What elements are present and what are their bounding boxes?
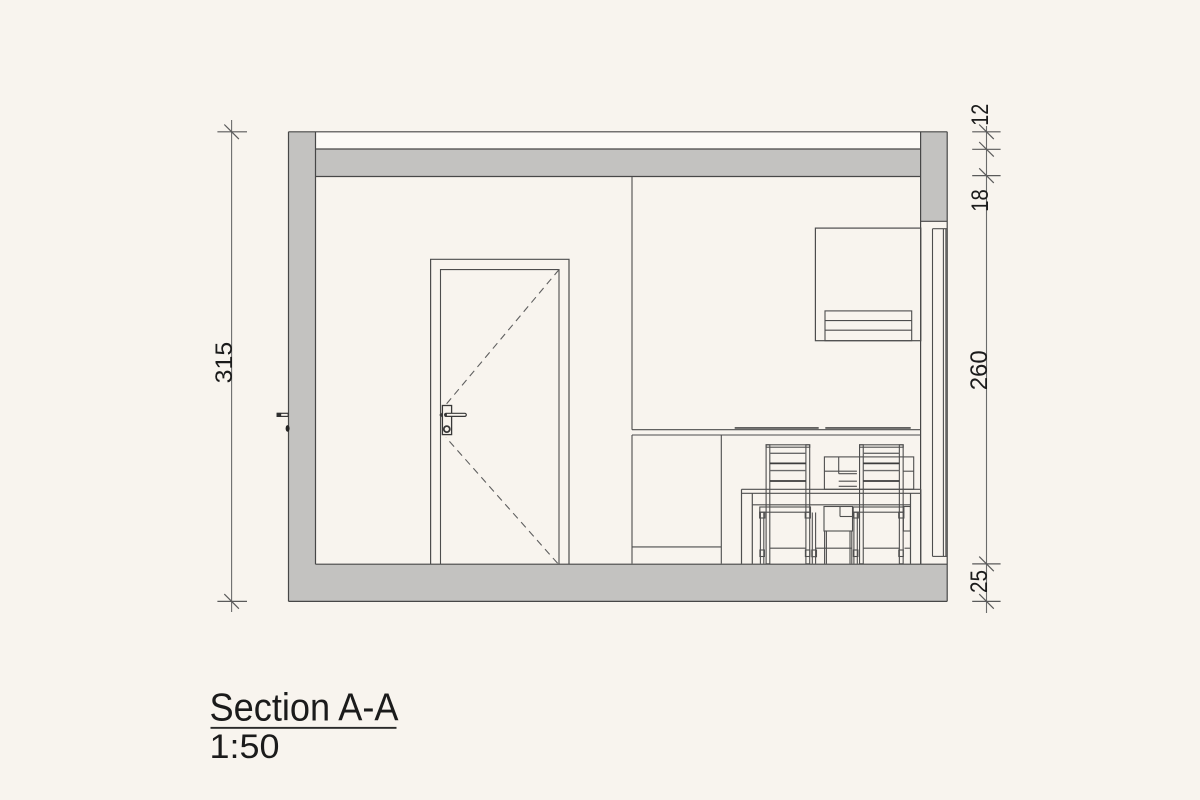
svg-text:12: 12 xyxy=(967,104,994,126)
svg-text:260: 260 xyxy=(966,350,993,390)
svg-text:18: 18 xyxy=(967,189,994,212)
svg-text:1:50: 1:50 xyxy=(210,728,280,766)
svg-text:315: 315 xyxy=(211,342,238,384)
svg-text:Section A-A: Section A-A xyxy=(210,686,399,729)
svg-text:25: 25 xyxy=(966,570,993,593)
